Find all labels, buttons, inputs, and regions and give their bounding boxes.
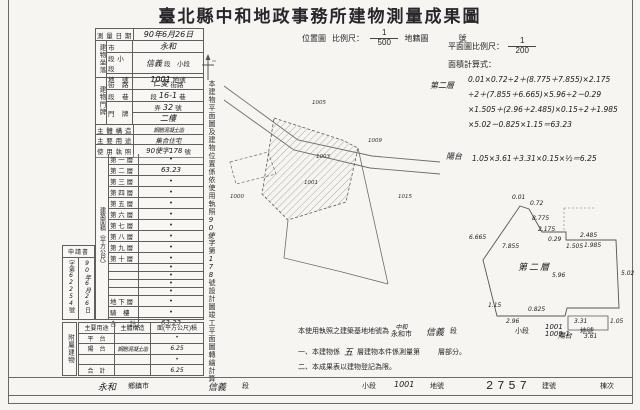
street-label: 街 路: [107, 78, 133, 89]
attached-structures-side-label: 附屬建物: [62, 322, 77, 376]
floor-row-basement: 地 下 層•: [109, 296, 203, 307]
city-row: 市 永和: [107, 41, 203, 53]
plan-scale-label: 平面圖比例尺：: [448, 41, 504, 52]
application-header: 申請書: [63, 246, 94, 258]
dimension-label: 0.825: [528, 306, 545, 313]
note-registration-line: 二、本成果表以建物登記為限。: [298, 362, 634, 372]
note-section-suffix: 段: [450, 326, 457, 336]
section-row: 段 小 段 信義段 小段: [107, 53, 203, 74]
alley-value: 32: [163, 103, 173, 112]
dimension-label: 1.985: [584, 242, 601, 249]
location-map-label: 位置圖: [302, 33, 326, 44]
subject-parcel-hatched: [262, 118, 358, 220]
attached-structures-table: 主要用途 主體構造 面(平方公尺)積 平 台 • 陽 台 鋼筋混凝土造 6.25…: [78, 322, 204, 376]
floor-row-blank-2: •: [109, 272, 203, 280]
floor-row-arcade: 騎 樓•: [109, 307, 203, 318]
survey-date-row: 測 量 日 期 90年6月26日: [96, 29, 203, 41]
dimension-label: 1.505: [566, 243, 583, 250]
building-location-group-label: 建物坐落: [96, 41, 107, 77]
formula-floor2-text: 0.01×0.72÷2＋(8.775＋7.855)×2.175 ÷2＋(7.85…: [468, 72, 632, 132]
street-suffix: 街路: [171, 79, 184, 89]
floor-area-side-label: 建築面積（平方公尺）: [96, 154, 109, 319]
usage-value: 集合住宅: [156, 135, 182, 145]
footer-strip: 永和 鄉鎮市 信義 段 小段 1001 地號 2757 建號 棟次: [8, 378, 632, 395]
note-floors-pre: 一、本建物係: [298, 347, 340, 357]
section-value: 信義: [146, 58, 162, 69]
street-value: 仁愛: [153, 78, 169, 89]
floor-row-6: 第 六 層•: [109, 209, 203, 220]
lane-prefix: 段: [150, 91, 157, 101]
boundary-line-bottom: [284, 220, 388, 284]
survey-date-value: 90年6月26日: [144, 29, 193, 40]
dimension-label: 0.01: [512, 194, 525, 201]
floor-row-8: 第 八 層•: [109, 231, 203, 242]
parcel-number-label: 1000: [230, 194, 244, 200]
caption-permit-number: 178: [207, 255, 215, 279]
area-calculation-label: 面積計算式：: [448, 59, 496, 70]
floor-row-3: 第 三 層•: [109, 176, 203, 187]
footer-building-number: 2757: [486, 379, 531, 393]
building-location-group: 建物坐落 市 永和 段 小 段 信義段 小段 地 號 1001地號: [96, 41, 203, 78]
note-registration-text: 二、本成果表以建物登記為限。: [298, 362, 396, 372]
application-date: 90年6月26: [84, 260, 90, 307]
footer-building-label: 建號: [542, 381, 556, 391]
parcel-number-label: 1001: [304, 180, 318, 186]
note-city-printed: 永和市: [391, 331, 412, 338]
location-map-scale-label: 比例尺：: [332, 33, 364, 44]
formula-balcony-text: 1.05×3.61＋3.31×0.15×½＝6.25: [472, 151, 632, 166]
structure-label: 主 體 構 造: [96, 125, 134, 134]
plan-scale-header: 平面圖比例尺： 1 200: [448, 37, 536, 56]
footer-parcel-label: 地號: [430, 381, 444, 391]
alley-prefix: 弄: [154, 102, 161, 112]
usage-row: 主 要 用 途 集合住宅: [96, 135, 203, 145]
formula-floor2-name: 第二層: [430, 80, 454, 91]
caption-mid: 字第: [208, 239, 215, 255]
caption-pre: 本建物平面圖及建物位置係依使用執照: [208, 80, 215, 216]
note-section-handwritten: 信義: [426, 325, 444, 338]
floor-row-blank-1: •: [109, 264, 203, 272]
usage-label: 主 要 用 途: [96, 135, 134, 144]
caption-post: 號設計圖竣工平面圖轉繪計算: [208, 279, 215, 383]
application-number: 62254: [68, 272, 74, 307]
city-label: 市: [107, 41, 133, 52]
door-number-label: 門 牌: [107, 102, 133, 124]
floor-row-9: 第 九 層•: [109, 242, 203, 253]
dimension-label: 5.96: [552, 272, 565, 279]
floor-number-value: 二樓: [160, 113, 176, 124]
note-parcel-2: 1009-1: [545, 331, 570, 338]
note-floors-count: 五: [344, 345, 353, 358]
lane-suffix: 巷: [179, 91, 186, 101]
section-label: 段 小 段: [107, 53, 133, 73]
formula-balcony-name: 陽台: [446, 151, 462, 162]
dimension-label: 0.72: [530, 200, 543, 207]
attached-row-platform: 平 台 •: [79, 334, 203, 345]
floor-area-table: 建築面積（平方公尺） 第 一 層• 第 二 層63.23 第 三 層• 第 四 …: [95, 154, 204, 320]
lane-value: 16-1: [159, 91, 177, 100]
note-floors-line: 一、本建物係 五 層建物本件係測量第 層部分。: [298, 345, 634, 358]
street-row: 街 路 仁愛街路: [107, 78, 203, 90]
survey-result-sheet: 臺北縣中和地政事務所建物測量成果圖 測 量 日 期 90年6月26日 建物坐落 …: [0, 0, 640, 410]
footer-unit-label: 棟次: [600, 381, 614, 391]
floor-row-10: 第 十 層•: [109, 253, 203, 264]
footer-section-label: 段: [242, 381, 249, 391]
building-info-form: 測 量 日 期 90年6月26日 建物坐落 市 永和 段 小 段 信義段 小段 …: [95, 28, 204, 158]
footer-city-label: 鄉鎮市: [128, 381, 149, 391]
parcel-number-label: 1009: [368, 138, 382, 144]
parcel-number-label: 1015: [398, 194, 412, 200]
alley-suffix: 號: [175, 102, 182, 112]
floor-row-5: 第 五 層•: [109, 198, 203, 209]
floor-plan-drawing: 0.01 0.72 8.775 2.175 0.29 1.505 2.485 1…: [468, 196, 636, 344]
note-site-pre: 本使用執照之建築基地地號為: [298, 326, 389, 336]
dimension-label: 1.15: [488, 302, 501, 309]
footer-parcel-number: 1001: [394, 380, 414, 389]
door-number-row: 門 牌 弄32號 二樓: [107, 102, 203, 124]
survey-date-label: 測 量 日 期: [96, 29, 134, 40]
dimension-label: 2.175: [538, 226, 555, 233]
attached-row-total: 合 計 6.25: [79, 365, 203, 375]
plan-scale-fraction: 1 200: [508, 37, 536, 56]
building-address-group: 建物門牌 街 路 仁愛街路 段 巷 段16-1巷 門 牌 弄32號 二: [96, 78, 203, 125]
footer-bottom-rule: [8, 395, 632, 396]
attached-row-balcony: 陽 台 鋼筋混凝土造 6.25: [79, 344, 203, 355]
city-value: 永和: [160, 41, 176, 52]
dimension-label: 8.775: [532, 215, 549, 222]
floor-row-blank-4: •: [109, 288, 203, 296]
source-caption-vertical: 本建物平面圖及建物位置係依使用執照90使字第178號設計圖竣工平面圖轉繪計算: [204, 80, 218, 392]
footer-city-handwritten: 永和: [98, 380, 116, 393]
floor-row-4: 第 四 層•: [109, 187, 203, 198]
page-title: 臺北縣中和地政事務所建物測量成果圖: [0, 2, 640, 27]
lane-row: 段 巷 段16-1巷: [107, 90, 203, 102]
dimension-label: 5.02: [621, 270, 634, 277]
cadastral-map-label: 地籍圖: [404, 33, 428, 44]
north-arrow-icon: [199, 54, 217, 82]
caption-permit-year: 90使: [207, 216, 215, 239]
footer-section-handwritten: 信義: [208, 380, 226, 393]
application-number-label: 字第: [68, 260, 74, 272]
lane-label: 段 巷: [107, 90, 133, 101]
floor-row-7: 第 七 層•: [109, 220, 203, 231]
parcel-number-label: 1003: [316, 154, 330, 160]
floor2-area-label: 第二層: [518, 260, 551, 273]
dimension-label: 2.485: [580, 232, 597, 239]
attached-header-row: 主要用途 主體構造 面(平方公尺)積: [79, 323, 203, 334]
footer-subsection-label: 小段: [362, 381, 376, 391]
floor-row-1: 第 一 層•: [109, 154, 203, 165]
note-floors-suffix: 層部分。: [438, 347, 466, 357]
attached-row-blank: •: [79, 355, 203, 366]
application-date-suffix: 日: [84, 307, 90, 313]
note-subsection-label: 小段: [515, 326, 529, 336]
dimension-label: 6.665: [469, 234, 486, 241]
floor-row-2: 第 二 層63.23: [109, 165, 203, 176]
location-map-sketch: 1005 1009 1003 1001 1000 1015: [222, 44, 442, 289]
note-site-line: 本使用執照之建築基地地號為 中和 永和市 信義 段 小段 1001 1009-1…: [298, 324, 634, 338]
section-suffix: 段 小段: [164, 58, 190, 68]
application-receipt-box: 申請書 字第62254號 90年6月26日: [62, 245, 95, 320]
note-parcel-suffix: 地號: [580, 326, 594, 336]
note-floors-mid: 層建物本件係測量第: [357, 347, 420, 357]
building-address-group-label: 建物門牌: [96, 78, 107, 124]
dimension-label: 7.855: [502, 243, 519, 250]
structure-value: 鋼筋混凝土造: [153, 126, 183, 134]
dimension-label: 0.29: [548, 236, 561, 243]
notes-block: 本使用執照之建築基地地號為 中和 永和市 信義 段 小段 1001 1009-1…: [298, 324, 634, 372]
structure-row: 主 體 構 造 鋼筋混凝土造: [96, 125, 203, 135]
parcel-number-label: 1005: [312, 100, 326, 106]
application-number-suffix: 號: [68, 307, 74, 313]
floor-row-blank-3: •: [109, 280, 203, 288]
